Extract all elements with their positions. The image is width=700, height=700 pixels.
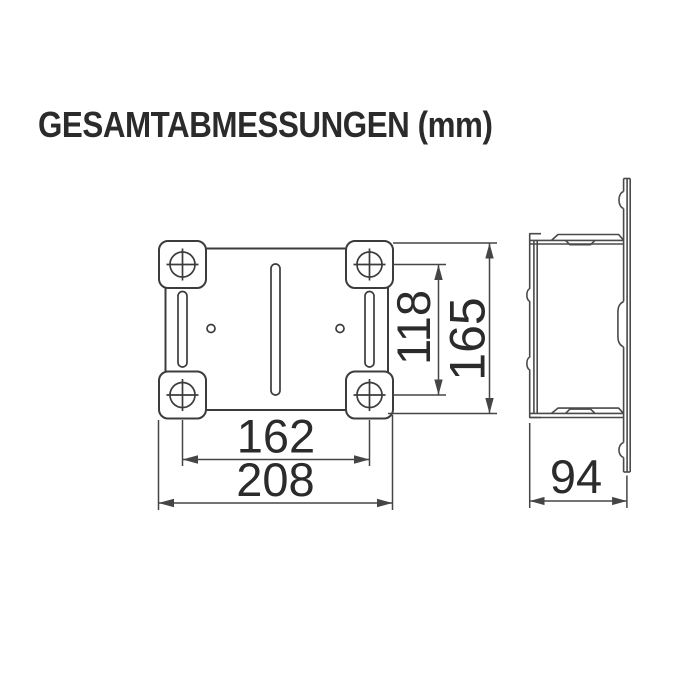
dim-hole-spacing-y: 118 [387,265,446,396]
dim-165-label: 165 [440,297,496,380]
side-back-plate [618,179,630,473]
boss-top [619,192,624,209]
arrow-top [434,265,442,281]
arrow-right [354,455,370,463]
arrow-bottom [434,380,442,396]
side-channel [527,234,624,418]
boss-bottom [619,443,624,458]
dim-208-label: 208 [236,453,314,506]
side-view [527,179,630,473]
dim-118-label: 118 [387,290,440,365]
arrow-left [159,499,175,507]
drawing-canvas: GESAMTABMESSUNGEN (mm) [0,0,700,700]
boss-middle [618,302,624,348]
arrow-bottom [485,398,493,414]
arrow-right [612,497,627,505]
arrow-top [485,243,493,259]
arrow-right [377,499,393,507]
front-view [159,241,393,419]
arrow-left [530,497,545,505]
dim-depth: 94 [530,423,627,508]
dim-94-label: 94 [550,450,602,503]
arrow-left [183,455,199,463]
top-tab [552,235,624,241]
dimension-drawing: 162 208 118 165 [0,0,700,700]
